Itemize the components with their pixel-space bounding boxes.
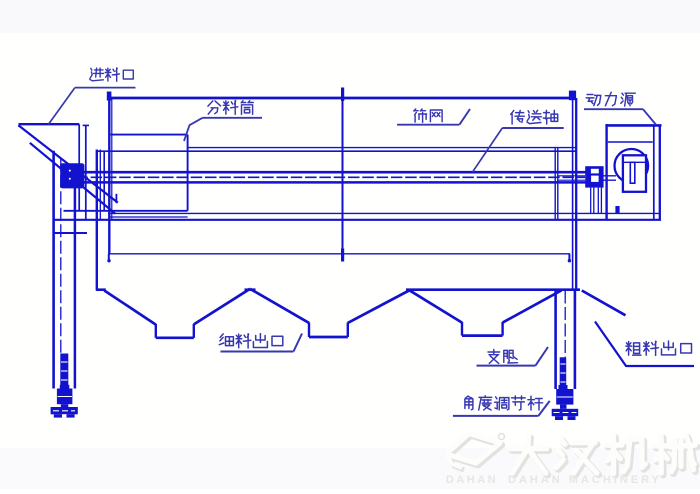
svg-text:DAHAN MACHINERY: DAHAN MACHINERY: [508, 474, 662, 486]
svg-text:DAHAN: DAHAN: [446, 474, 498, 486]
